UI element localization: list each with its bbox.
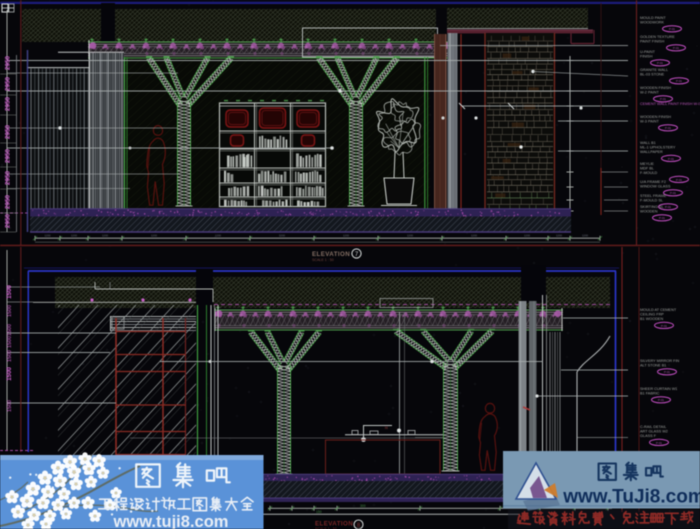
svg-text:2950: 2950	[5, 96, 12, 111]
svg-text:P-01: P-01	[661, 324, 667, 328]
svg-text:P-01: P-01	[668, 157, 674, 161]
svg-text:P-01: P-01	[664, 370, 670, 374]
svg-text:WALL B1: WALL B1	[640, 141, 656, 145]
svg-text:1200: 1200	[215, 233, 222, 237]
svg-text:WOODEN FINISH: WOODEN FINISH	[640, 115, 671, 119]
svg-text:1200: 1200	[44, 233, 51, 237]
svg-text:WALLPAPER: WALLPAPER	[640, 150, 663, 154]
svg-text:150: 150	[316, 510, 322, 514]
svg-text:P-01: P-01	[656, 441, 662, 445]
svg-text:MDF BL: MDF BL	[640, 167, 654, 171]
svg-text:1200: 1200	[343, 233, 350, 237]
svg-text:STEEL FRAME: STEEL FRAME	[640, 194, 667, 198]
svg-text:P-01: P-01	[670, 191, 676, 195]
svg-text:MOULD AT CEMENT: MOULD AT CEMENT	[640, 308, 677, 312]
svg-text:2950: 2950	[5, 55, 12, 70]
svg-text:P-01: P-01	[665, 126, 671, 130]
svg-text:ML-1 UPHOLSTERY: ML-1 UPHOLSTERY	[640, 146, 676, 150]
svg-text:PAINT FINISH: PAINT FINISH	[640, 40, 665, 44]
svg-text:WINDOW GLASS: WINDOW GLASS	[640, 185, 671, 189]
svg-text:2950: 2950	[5, 213, 12, 228]
svg-text:P-01: P-01	[660, 97, 666, 101]
svg-text:1200: 1200	[524, 233, 531, 237]
svg-text:1200: 1200	[556, 233, 563, 237]
svg-text:ART GLASS W2: ART GLASS W2	[640, 430, 668, 434]
svg-text:1500: 1500	[7, 324, 13, 336]
svg-text:1500: 1500	[7, 305, 13, 317]
svg-text:F-MOULD: F-MOULD	[640, 171, 658, 175]
svg-text:2950: 2950	[5, 194, 12, 209]
svg-text:1500: 1500	[7, 336, 13, 348]
svg-text:BL-03 STONE: BL-03 STONE	[640, 73, 665, 77]
svg-text:1200: 1200	[102, 233, 109, 237]
svg-text:GLASS F: GLASS F	[640, 434, 657, 438]
svg-text:SCALE 1 : 50: SCALE 1 : 50	[312, 258, 334, 262]
svg-text:www.tuji8.com: www.tuji8.com	[113, 513, 229, 529]
svg-text:W-2 PAINT: W-2 PAINT	[640, 91, 660, 95]
svg-text:www.TuJi8.com: www.TuJi8.com	[562, 487, 700, 508]
svg-text:F-MOULD SL: F-MOULD SL	[640, 199, 663, 203]
svg-text:WOODWORK: WOODWORK	[640, 21, 665, 25]
svg-text:1200: 1200	[71, 233, 78, 237]
svg-text:2950: 2950	[5, 124, 12, 139]
svg-text:FINISH: FINISH	[640, 55, 653, 59]
svg-text:SKIRTING SL: SKIRTING SL	[640, 205, 664, 209]
svg-text:2950: 2950	[5, 148, 12, 163]
svg-text:CEILING FRP: CEILING FRP	[640, 313, 664, 317]
svg-text:U/A FRAME F2: U/A FRAME F2	[640, 180, 666, 184]
svg-text:1200: 1200	[407, 233, 414, 237]
svg-text:MEYLIE: MEYLIE	[640, 162, 654, 166]
svg-text:2950: 2950	[5, 76, 12, 91]
svg-text:SHEER CURTAIN W1: SHEER CURTAIN W1	[640, 387, 677, 391]
svg-text:WOODEN FINISH: WOODEN FINISH	[640, 86, 671, 90]
svg-text:1500: 1500	[7, 350, 13, 362]
svg-text:1200: 1200	[151, 233, 158, 237]
svg-text:1200: 1200	[471, 233, 478, 237]
svg-text:1200: 1200	[279, 233, 286, 237]
svg-text:1500: 1500	[7, 400, 13, 412]
svg-text:1500: 1500	[6, 285, 13, 299]
svg-text:1200: 1200	[582, 233, 589, 237]
svg-text:P-01: P-01	[658, 398, 664, 402]
svg-text:GRANITE WALL: GRANITE WALL	[640, 68, 668, 72]
svg-text:ht: ht	[385, 426, 388, 430]
svg-text:GOLDEN TEXTURE: GOLDEN TEXTURE	[640, 35, 675, 39]
svg-text:U-PAINT: U-PAINT	[640, 50, 656, 54]
svg-text:P-01: P-01	[676, 79, 682, 83]
svg-text:P-01: P-01	[657, 61, 663, 65]
svg-text:W-3 PAINT: W-3 PAINT	[640, 120, 660, 124]
svg-text:P-01: P-01	[676, 178, 682, 182]
svg-text:ALT STONE B1: ALT STONE B1	[640, 364, 666, 368]
svg-text:B1 WOODEN: B1 WOODEN	[640, 317, 663, 321]
svg-text:P-01: P-01	[673, 46, 679, 50]
svg-text:1500: 1500	[6, 367, 13, 381]
svg-text:B1 FABRIC: B1 FABRIC	[640, 392, 660, 396]
svg-text:MOULD PAINT: MOULD PAINT	[640, 16, 666, 20]
svg-text:300: 300	[360, 504, 366, 508]
svg-text:P-01: P-01	[659, 216, 665, 220]
svg-text:2950: 2950	[5, 170, 12, 185]
svg-text:P-01: P-01	[665, 205, 671, 209]
svg-text:WOODEN: WOODEN	[640, 210, 658, 214]
svg-text:P-01: P-01	[669, 27, 675, 31]
svg-text:SILVERY MIRROR FIN: SILVERY MIRROR FIN	[640, 359, 680, 363]
svg-text:C-RAIL DETAIL: C-RAIL DETAIL	[640, 425, 666, 429]
svg-text:CEMENT WALL PAINT FINISH W-01: CEMENT WALL PAINT FINISH W-01	[640, 102, 700, 106]
